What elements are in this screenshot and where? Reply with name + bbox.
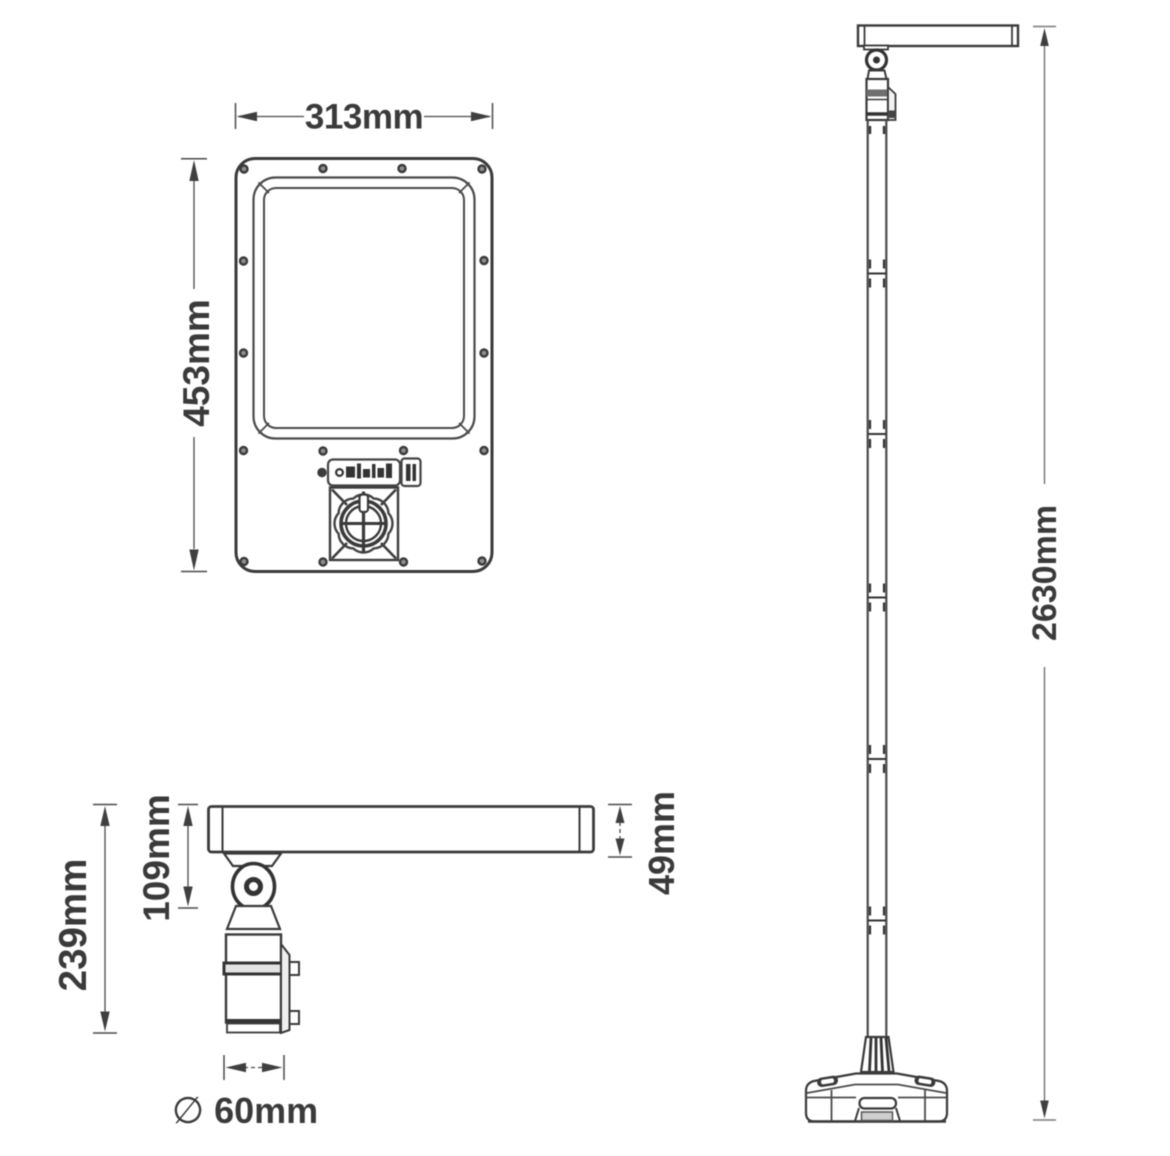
svg-text:453mm: 453mm (176, 299, 217, 427)
svg-text:109mm: 109mm (136, 794, 177, 922)
svg-text:∅ 60mm: ∅ 60mm (172, 1090, 318, 1131)
svg-text:49mm: 49mm (641, 791, 682, 895)
svg-text:2630mm: 2630mm (1026, 505, 1064, 641)
svg-text:313mm: 313mm (305, 98, 423, 137)
svg-text:239mm: 239mm (52, 859, 95, 992)
